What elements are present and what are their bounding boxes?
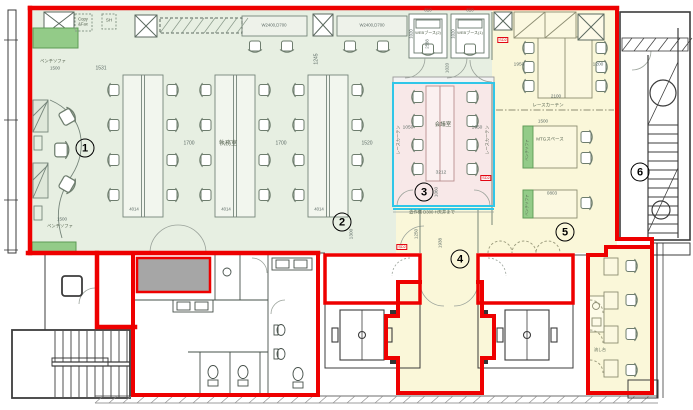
bench-dim-top: 1500 xyxy=(50,67,60,72)
dim-1245: 1245 xyxy=(314,53,319,64)
bench-dim-bottom: 1500 xyxy=(57,218,67,223)
dim-1020-a: 1020 xyxy=(410,29,415,39)
dim-4014-a: 4014 xyxy=(129,208,139,213)
bench-sofa-label-top: ベンチソファ xyxy=(40,60,66,65)
dim-1700-b: 1700 xyxy=(275,141,286,146)
dim-1531: 1531 xyxy=(95,66,106,71)
bench-sofa-label-mtg1: ベンチソファ xyxy=(526,139,530,161)
dim-1020-c: 1020 xyxy=(446,63,451,73)
shelf-note-label: 造作棚 D300 H天井まで xyxy=(409,211,455,216)
dim-1060: 1060 xyxy=(435,187,440,197)
dim-1500-mtg: 1500 xyxy=(538,120,548,125)
column xyxy=(62,276,82,296)
dim-1950: 1950 xyxy=(514,62,525,67)
floor-plan: 執務室 会議室 MTGスペース WEBブース(2) WEBブース(1) Copy… xyxy=(0,0,693,410)
dim-1520: 1520 xyxy=(361,141,372,146)
web-booth-2-label: WEBブース(2) xyxy=(415,31,441,35)
web-booth-1-label: WEBブース(1) xyxy=(457,31,483,35)
marker-2: 2 xyxy=(333,213,352,232)
ground-strip xyxy=(95,396,658,403)
dim-1050-b: 1050 xyxy=(472,125,483,130)
bench-sofa-label-mtg2: ベンチソファ xyxy=(526,194,530,216)
floor-plan-canvas xyxy=(0,0,693,410)
dim-1300: 1300 xyxy=(349,229,354,240)
dim-1250: 1250 xyxy=(415,229,420,239)
sink-label: 流し台 xyxy=(594,348,606,352)
planter-bottom xyxy=(32,242,76,252)
desk-island-1 xyxy=(123,75,163,217)
dim-3212: 3212 xyxy=(436,170,447,175)
marker-5: 5 xyxy=(556,223,575,242)
planter-top xyxy=(33,28,78,48)
dim-1200: 1200 xyxy=(593,62,604,67)
office-room-label: 執務室 xyxy=(219,141,237,147)
dim-810-a: 810 xyxy=(424,9,431,14)
marker-1: 1 xyxy=(76,139,95,158)
dim-4014-c: 4014 xyxy=(314,208,324,213)
pillar-5 xyxy=(578,14,604,40)
marker-4: 4 xyxy=(451,250,470,269)
door-tag-1: SD2 xyxy=(480,175,491,181)
pillar-2 xyxy=(135,15,157,37)
bench-sofa-label-bottom: ベンチソファ xyxy=(47,225,73,230)
big-table xyxy=(538,37,592,98)
dim-1700-a: 1700 xyxy=(183,141,194,146)
door-tag-2: SD2 xyxy=(396,244,407,250)
stairwell xyxy=(12,330,130,398)
curtain-label-right: レースカーテン xyxy=(486,125,491,154)
pillar-3 xyxy=(313,14,333,36)
door-tag-3: SD2 xyxy=(497,37,508,43)
mtg-table-1 xyxy=(523,126,577,168)
marker-6: 6 xyxy=(631,163,650,182)
sh-label: SH xyxy=(106,19,112,24)
dim-wall-desk-1: W2400,D700 xyxy=(261,24,286,29)
dim-wall-desk-2: W2400,D700 xyxy=(359,24,384,29)
dim-2100: 2100 xyxy=(551,95,561,100)
dim-1050-a: 1050 xyxy=(403,125,414,130)
pillar-4 xyxy=(494,12,512,30)
dim-810-b: 810 xyxy=(466,9,473,14)
mtg-space-label: MTGスペース xyxy=(536,138,563,143)
curtain-label-lounge: レースカーテン xyxy=(532,104,563,109)
dim-1938: 1938 xyxy=(439,238,444,248)
marker-3: 3 xyxy=(415,183,434,202)
curtain-label-left: レースカーテン xyxy=(397,125,402,154)
desk-island-3 xyxy=(308,75,348,217)
upper-cabinets xyxy=(514,12,576,38)
dim-0803: 0803 xyxy=(547,192,557,197)
copy-fax-label: Copy &Fax xyxy=(75,17,91,26)
dim-1020-b: 1020 xyxy=(452,29,457,39)
dim-4014-b: 4014 xyxy=(221,208,231,213)
dim-2588: 2588 xyxy=(426,39,431,49)
meeting-room-label: 会議室 xyxy=(435,123,452,129)
